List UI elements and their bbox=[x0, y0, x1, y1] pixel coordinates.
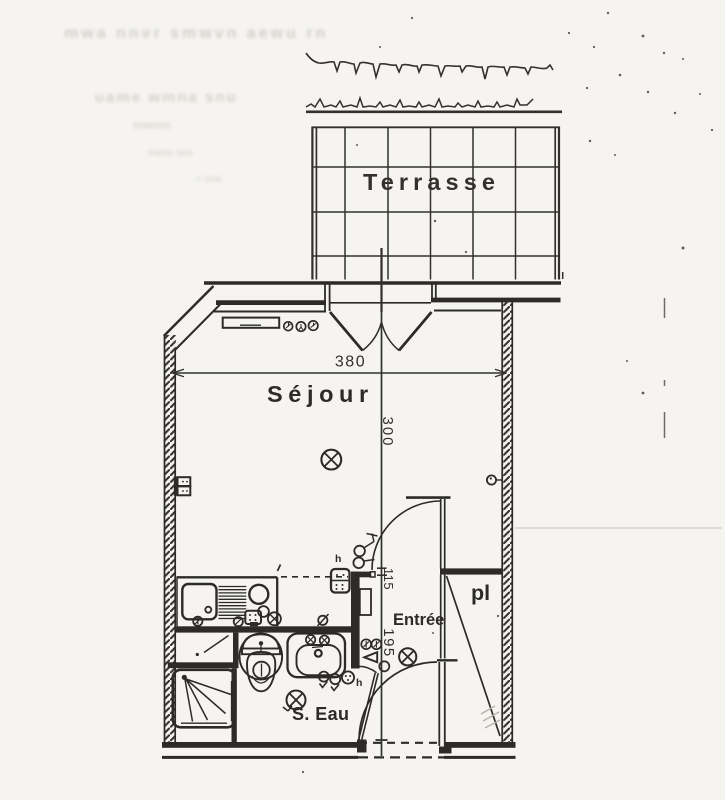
svg-text:Terrasse: Terrasse bbox=[363, 169, 500, 195]
svg-text:nwm um: nwm um bbox=[148, 147, 193, 159]
svg-text:Entrée: Entrée bbox=[393, 611, 444, 629]
svg-text:195: 195 bbox=[380, 628, 397, 658]
svg-text:mwmo: mwmo bbox=[133, 118, 171, 132]
svg-text:h: h bbox=[335, 553, 341, 565]
svg-text:380: 380 bbox=[335, 354, 366, 371]
svg-text:115: 115 bbox=[381, 568, 396, 590]
svg-text:mwa nnvr smwvn aewu rn: mwa nnvr smwvn aewu rn bbox=[64, 25, 328, 42]
svg-text:uame wmna snu: uame wmna snu bbox=[95, 89, 238, 106]
svg-text:300: 300 bbox=[379, 416, 396, 447]
svg-text:Séjour: Séjour bbox=[267, 381, 374, 407]
svg-text:= mw: = mw bbox=[196, 174, 222, 185]
svg-text:h: h bbox=[356, 677, 362, 689]
svg-text:pl: pl bbox=[471, 581, 490, 605]
svg-text:S. Eau: S. Eau bbox=[292, 704, 349, 724]
